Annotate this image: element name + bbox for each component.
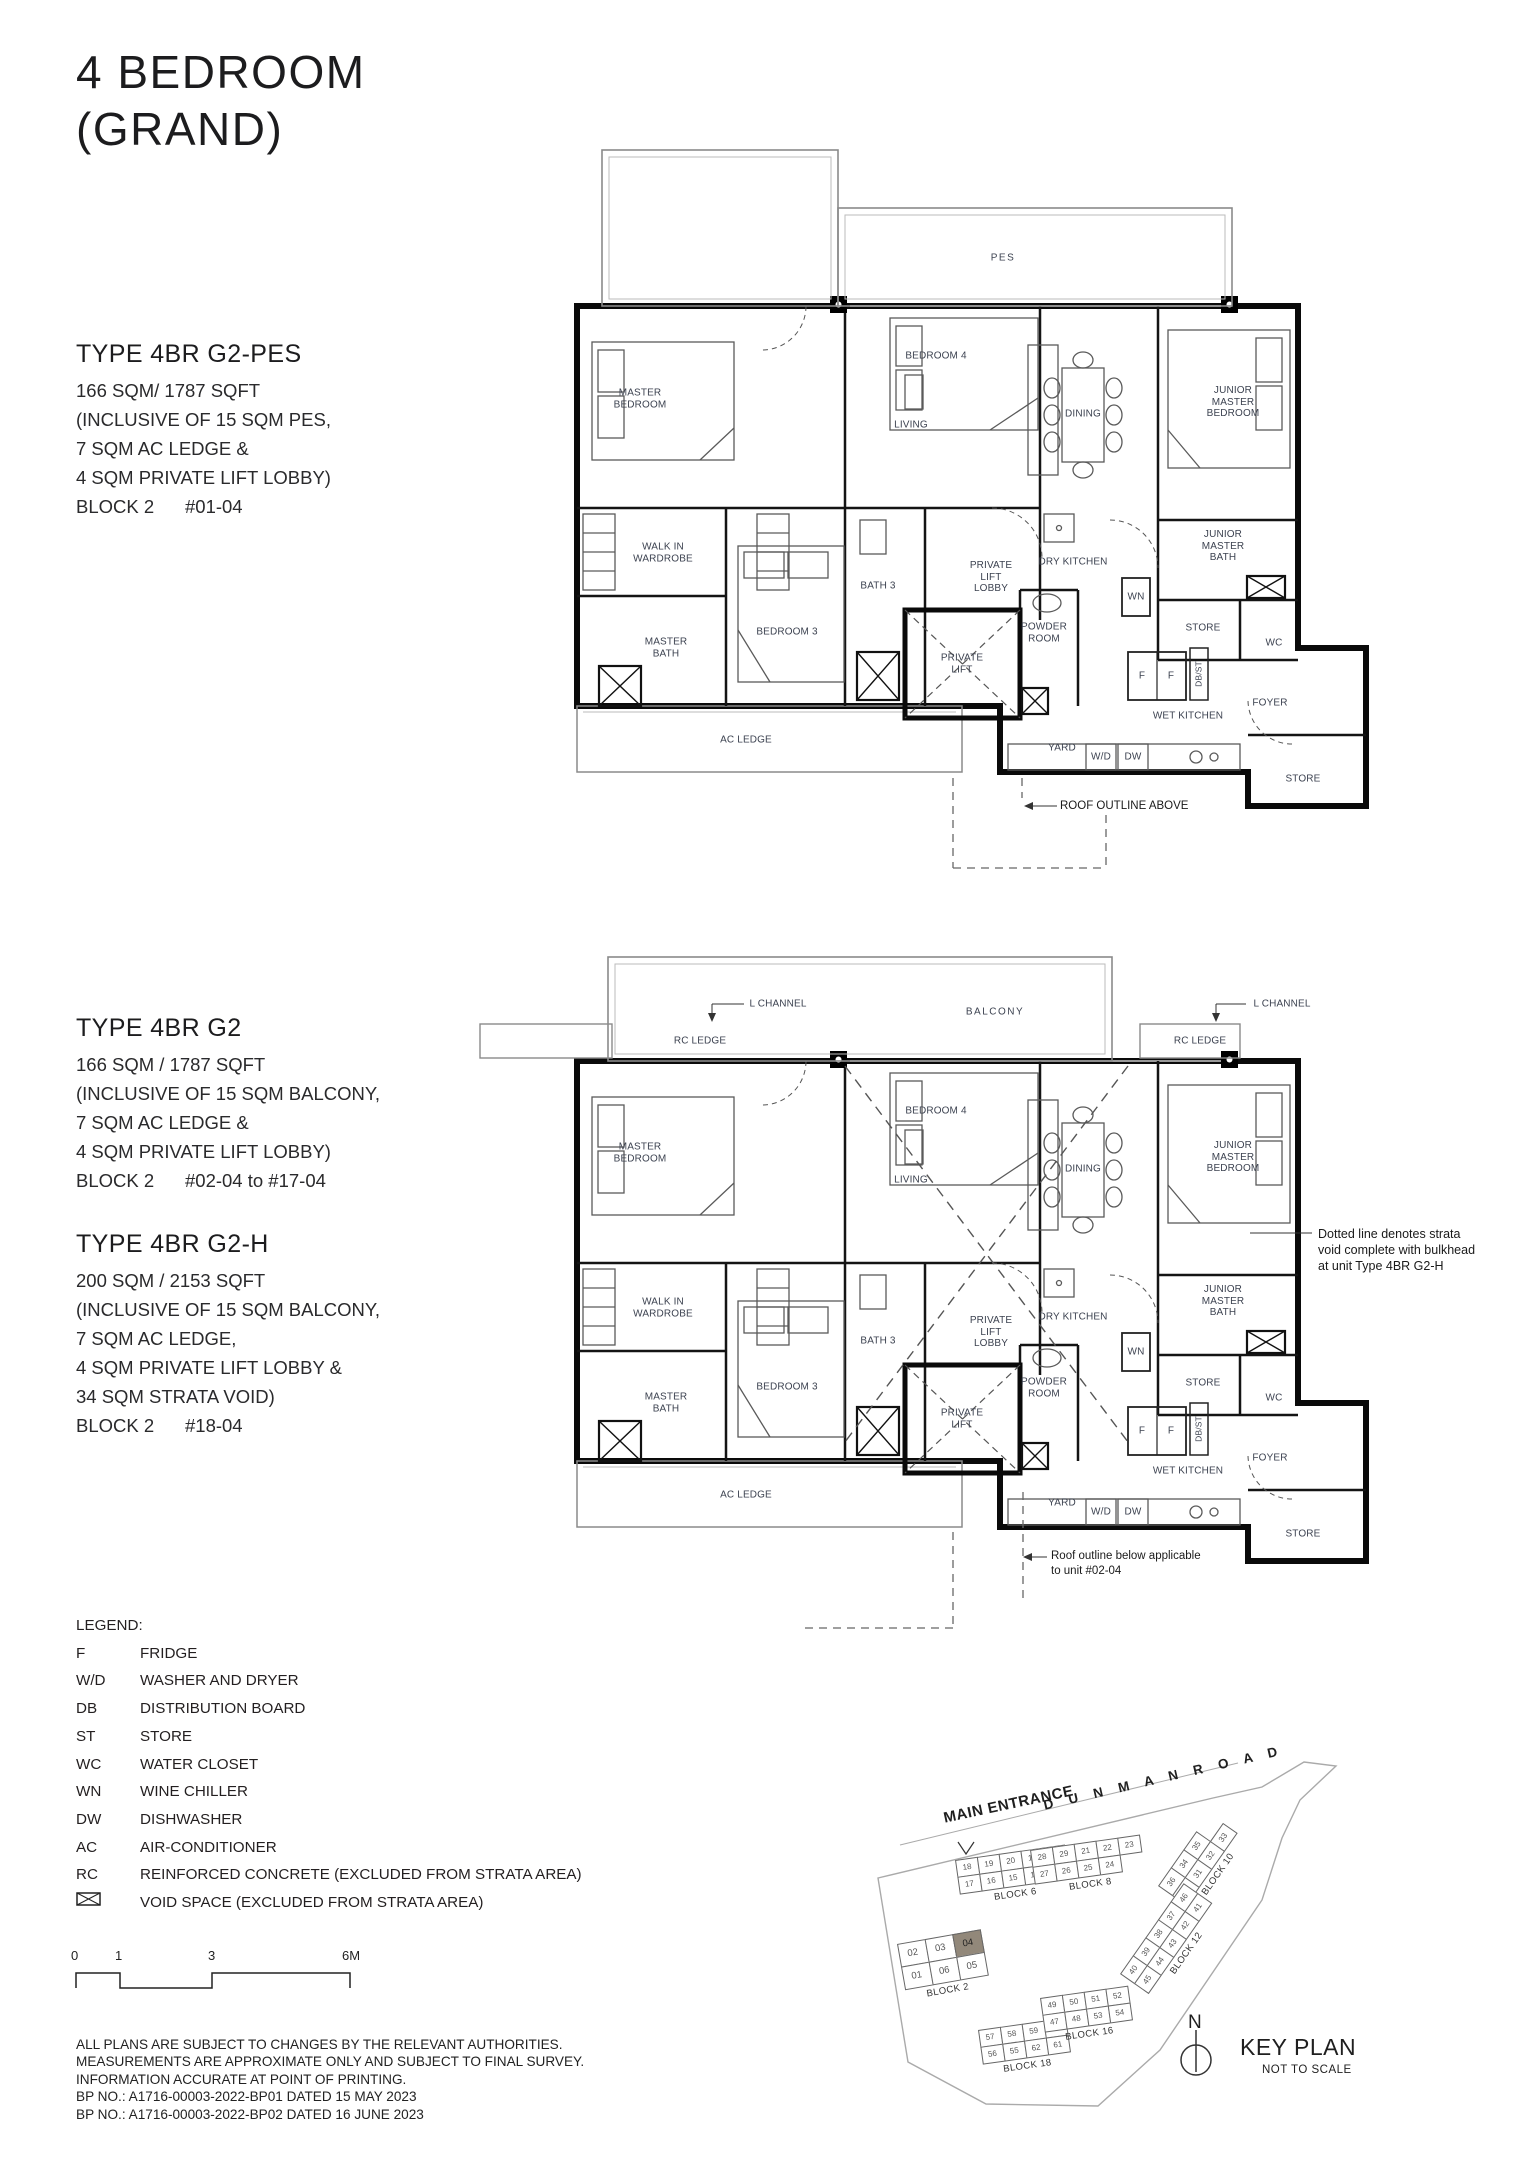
room-label-private-lift-lobby: PRIVATE LIFT LOBBY bbox=[970, 560, 1012, 595]
room-label-bedroom-3: BEDROOM 3 bbox=[756, 626, 817, 638]
legend-item-void: VOID SPACE (EXCLUDED FROM STRATA AREA) bbox=[76, 1889, 582, 1917]
room-label-powder-room: POWDER ROOM bbox=[1021, 622, 1067, 645]
legend-item: DWDISHWASHER bbox=[76, 1806, 582, 1834]
type-name: TYPE 4BR G2 bbox=[76, 1014, 380, 1043]
label-rc-ledge-right: RC LEDGE bbox=[1174, 1035, 1226, 1047]
label-dw: DW bbox=[1125, 751, 1142, 763]
label-db-st: DB/ST bbox=[1193, 661, 1205, 687]
label-wc: WC bbox=[1266, 1392, 1283, 1404]
scale-tick-3: 3 bbox=[208, 1948, 215, 1963]
room-label-pes: PES bbox=[991, 252, 1016, 264]
void-space-icon bbox=[76, 1889, 140, 1917]
floor-plan-page: 4 BEDROOM (GRAND) TYPE 4BR G2-PES 166 SQ… bbox=[0, 0, 1516, 2184]
legend-item: WNWINE CHILLER bbox=[76, 1778, 582, 1806]
legend-item: ACAIR-CONDITIONER bbox=[76, 1834, 582, 1862]
note-strata-void: Dotted line denotes strata void complete… bbox=[1318, 1226, 1475, 1274]
keyplan-unit-05: 05 bbox=[956, 1951, 989, 1980]
label-wd: W/D bbox=[1091, 751, 1111, 763]
note-roof-outline-above: ROOF OUTLINE ABOVE bbox=[1060, 799, 1188, 814]
room-label-foyer: FOYER bbox=[1252, 697, 1287, 709]
room-label-dining: DINING bbox=[1065, 408, 1101, 420]
room-label-bedroom-3: BEDROOM 3 bbox=[756, 1381, 817, 1393]
keyplan-unit-23: 23 bbox=[1117, 1834, 1142, 1855]
legend-item: STSTORE bbox=[76, 1723, 582, 1751]
label-fridge: F bbox=[1168, 670, 1174, 682]
room-label-master-bath: MASTER BATH bbox=[645, 637, 688, 660]
room-label-dry-kitchen: DRY KITCHEN bbox=[1038, 556, 1107, 568]
room-label-walk-in-wardrobe: WALK IN WARDROBE bbox=[633, 1297, 693, 1320]
room-label-master-bath: MASTER BATH bbox=[645, 1392, 688, 1415]
room-label-private-lift: PRIVATE LIFT bbox=[941, 1408, 983, 1431]
room-label-bedroom-4: BEDROOM 4 bbox=[905, 350, 966, 362]
room-label-store-rear: STORE bbox=[1285, 773, 1320, 785]
keyplan-title: KEY PLAN bbox=[1240, 2034, 1356, 2061]
label-fridge: F bbox=[1139, 1425, 1145, 1437]
room-label-wet-kitchen: WET KITCHEN bbox=[1153, 710, 1223, 722]
room-label-store: STORE bbox=[1185, 622, 1220, 634]
keyplan-unit-24: 24 bbox=[1097, 1854, 1122, 1875]
room-label-store: STORE bbox=[1185, 1377, 1220, 1389]
type-block-g2: TYPE 4BR G2 166 SQM / 1787 SQFT (INCLUSI… bbox=[76, 1014, 380, 1195]
legend-item: DBDISTRIBUTION BOARD bbox=[76, 1695, 582, 1723]
type-block-g2-pes: TYPE 4BR G2-PES 166 SQM/ 1787 SQFT (INCL… bbox=[76, 340, 331, 521]
room-label-bedroom-4: BEDROOM 4 bbox=[905, 1105, 966, 1117]
room-label-dry-kitchen: DRY KITCHEN bbox=[1038, 1311, 1107, 1323]
room-label-junior-master-bedroom: JUNIOR MASTER BEDROOM bbox=[1207, 1140, 1260, 1175]
legend-item: FFRIDGE bbox=[76, 1640, 582, 1668]
label-fridge: F bbox=[1168, 1425, 1174, 1437]
room-label-junior-master-bath: JUNIOR MASTER BATH bbox=[1202, 529, 1245, 564]
room-label-living: LIVING bbox=[894, 1174, 928, 1186]
scale-tick-6m: 6M bbox=[342, 1948, 360, 1963]
keyplan-subtitle: NOT TO SCALE bbox=[1262, 2064, 1352, 2076]
note-roof-outline-below: Roof outline below applicable to unit #0… bbox=[1051, 1549, 1201, 1579]
room-label-bath-3: BATH 3 bbox=[860, 580, 895, 592]
legend-item: WCWATER CLOSET bbox=[76, 1751, 582, 1779]
room-label-yard: YARD bbox=[1048, 1497, 1076, 1509]
keyplan-unit-54: 54 bbox=[1107, 2002, 1132, 2023]
scale-tick-0: 0 bbox=[71, 1948, 78, 1963]
label-wd: W/D bbox=[1091, 1506, 1111, 1518]
legend-title: LEGEND: bbox=[76, 1612, 582, 1640]
room-label-walk-in-wardrobe: WALK IN WARDROBE bbox=[633, 542, 693, 565]
room-label-powder-room: POWDER ROOM bbox=[1021, 1377, 1067, 1400]
legend-item: RCREINFORCED CONCRETE (EXCLUDED FROM STR… bbox=[76, 1861, 582, 1889]
label-l-channel-right: L CHANNEL bbox=[1253, 998, 1310, 1010]
label-l-channel-left: L CHANNEL bbox=[749, 998, 806, 1010]
label-dw: DW bbox=[1125, 1506, 1142, 1518]
type-name: TYPE 4BR G2-H bbox=[76, 1230, 380, 1259]
label-wc: WC bbox=[1266, 637, 1283, 649]
label-ac-ledge: AC LEDGE bbox=[720, 734, 772, 746]
label-ac-ledge: AC LEDGE bbox=[720, 1489, 772, 1501]
page-title: 4 BEDROOM (GRAND) bbox=[76, 44, 366, 158]
room-label-living: LIVING bbox=[894, 419, 928, 431]
room-label-bath-3: BATH 3 bbox=[860, 1335, 895, 1347]
scale-tick-1: 1 bbox=[115, 1948, 122, 1963]
room-label-master-bedroom: MASTER BEDROOM bbox=[614, 388, 667, 411]
room-label-junior-master-bedroom: JUNIOR MASTER BEDROOM bbox=[1207, 385, 1260, 420]
disclaimer: ALL PLANS ARE SUBJECT TO CHANGES BY THE … bbox=[76, 2036, 584, 2123]
room-label-wet-kitchen: WET KITCHEN bbox=[1153, 1465, 1223, 1477]
type-name: TYPE 4BR G2-PES bbox=[76, 340, 331, 369]
room-label-yard: YARD bbox=[1048, 742, 1076, 754]
room-label-private-lift-lobby: PRIVATE LIFT LOBBY bbox=[970, 1315, 1012, 1350]
north-label: N bbox=[1188, 2012, 1202, 2034]
room-label-dining: DINING bbox=[1065, 1163, 1101, 1175]
room-label-foyer: FOYER bbox=[1252, 1452, 1287, 1464]
label-rc-ledge-left: RC LEDGE bbox=[674, 1035, 726, 1047]
legend-item: W/DWASHER AND DRYER bbox=[76, 1667, 582, 1695]
label-fridge: F bbox=[1139, 670, 1145, 682]
type-block-g2-h: TYPE 4BR G2-H 200 SQM / 2153 SQFT (INCLU… bbox=[76, 1230, 380, 1440]
label-wn: WN bbox=[1128, 591, 1145, 603]
legend: LEGEND: FFRIDGE W/DWASHER AND DRYER DBDI… bbox=[76, 1612, 582, 1917]
scale-bar bbox=[76, 1973, 350, 1988]
label-wn: WN bbox=[1128, 1346, 1145, 1358]
room-label-store-rear: STORE bbox=[1285, 1528, 1320, 1540]
label-db-st: DB/ST bbox=[1193, 1416, 1205, 1442]
room-label-balcony: BALCONY bbox=[966, 1006, 1024, 1018]
room-label-junior-master-bath: JUNIOR MASTER BATH bbox=[1202, 1284, 1245, 1319]
room-label-master-bedroom: MASTER BEDROOM bbox=[614, 1142, 667, 1165]
room-label-private-lift: PRIVATE LIFT bbox=[941, 653, 983, 676]
